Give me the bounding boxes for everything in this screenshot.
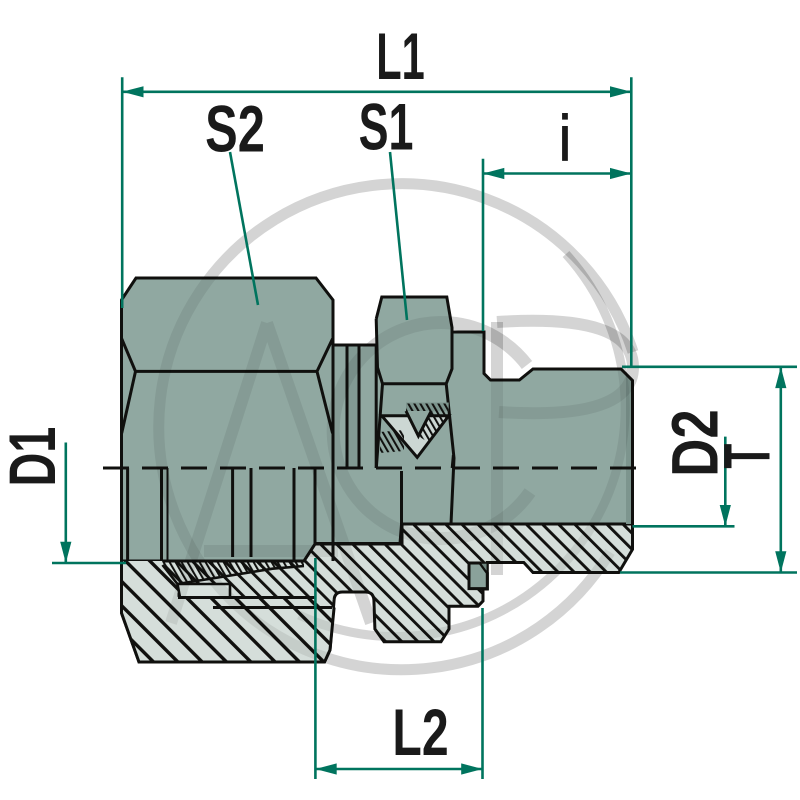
svg-text:S2: S2: [205, 92, 265, 166]
svg-text:L2: L2: [392, 697, 448, 770]
svg-text:S1: S1: [359, 90, 414, 164]
svg-text:D1: D1: [0, 427, 70, 487]
svg-text:T: T: [710, 444, 785, 469]
svg-text:L1: L1: [376, 19, 425, 93]
svg-text:i: i: [559, 101, 571, 175]
